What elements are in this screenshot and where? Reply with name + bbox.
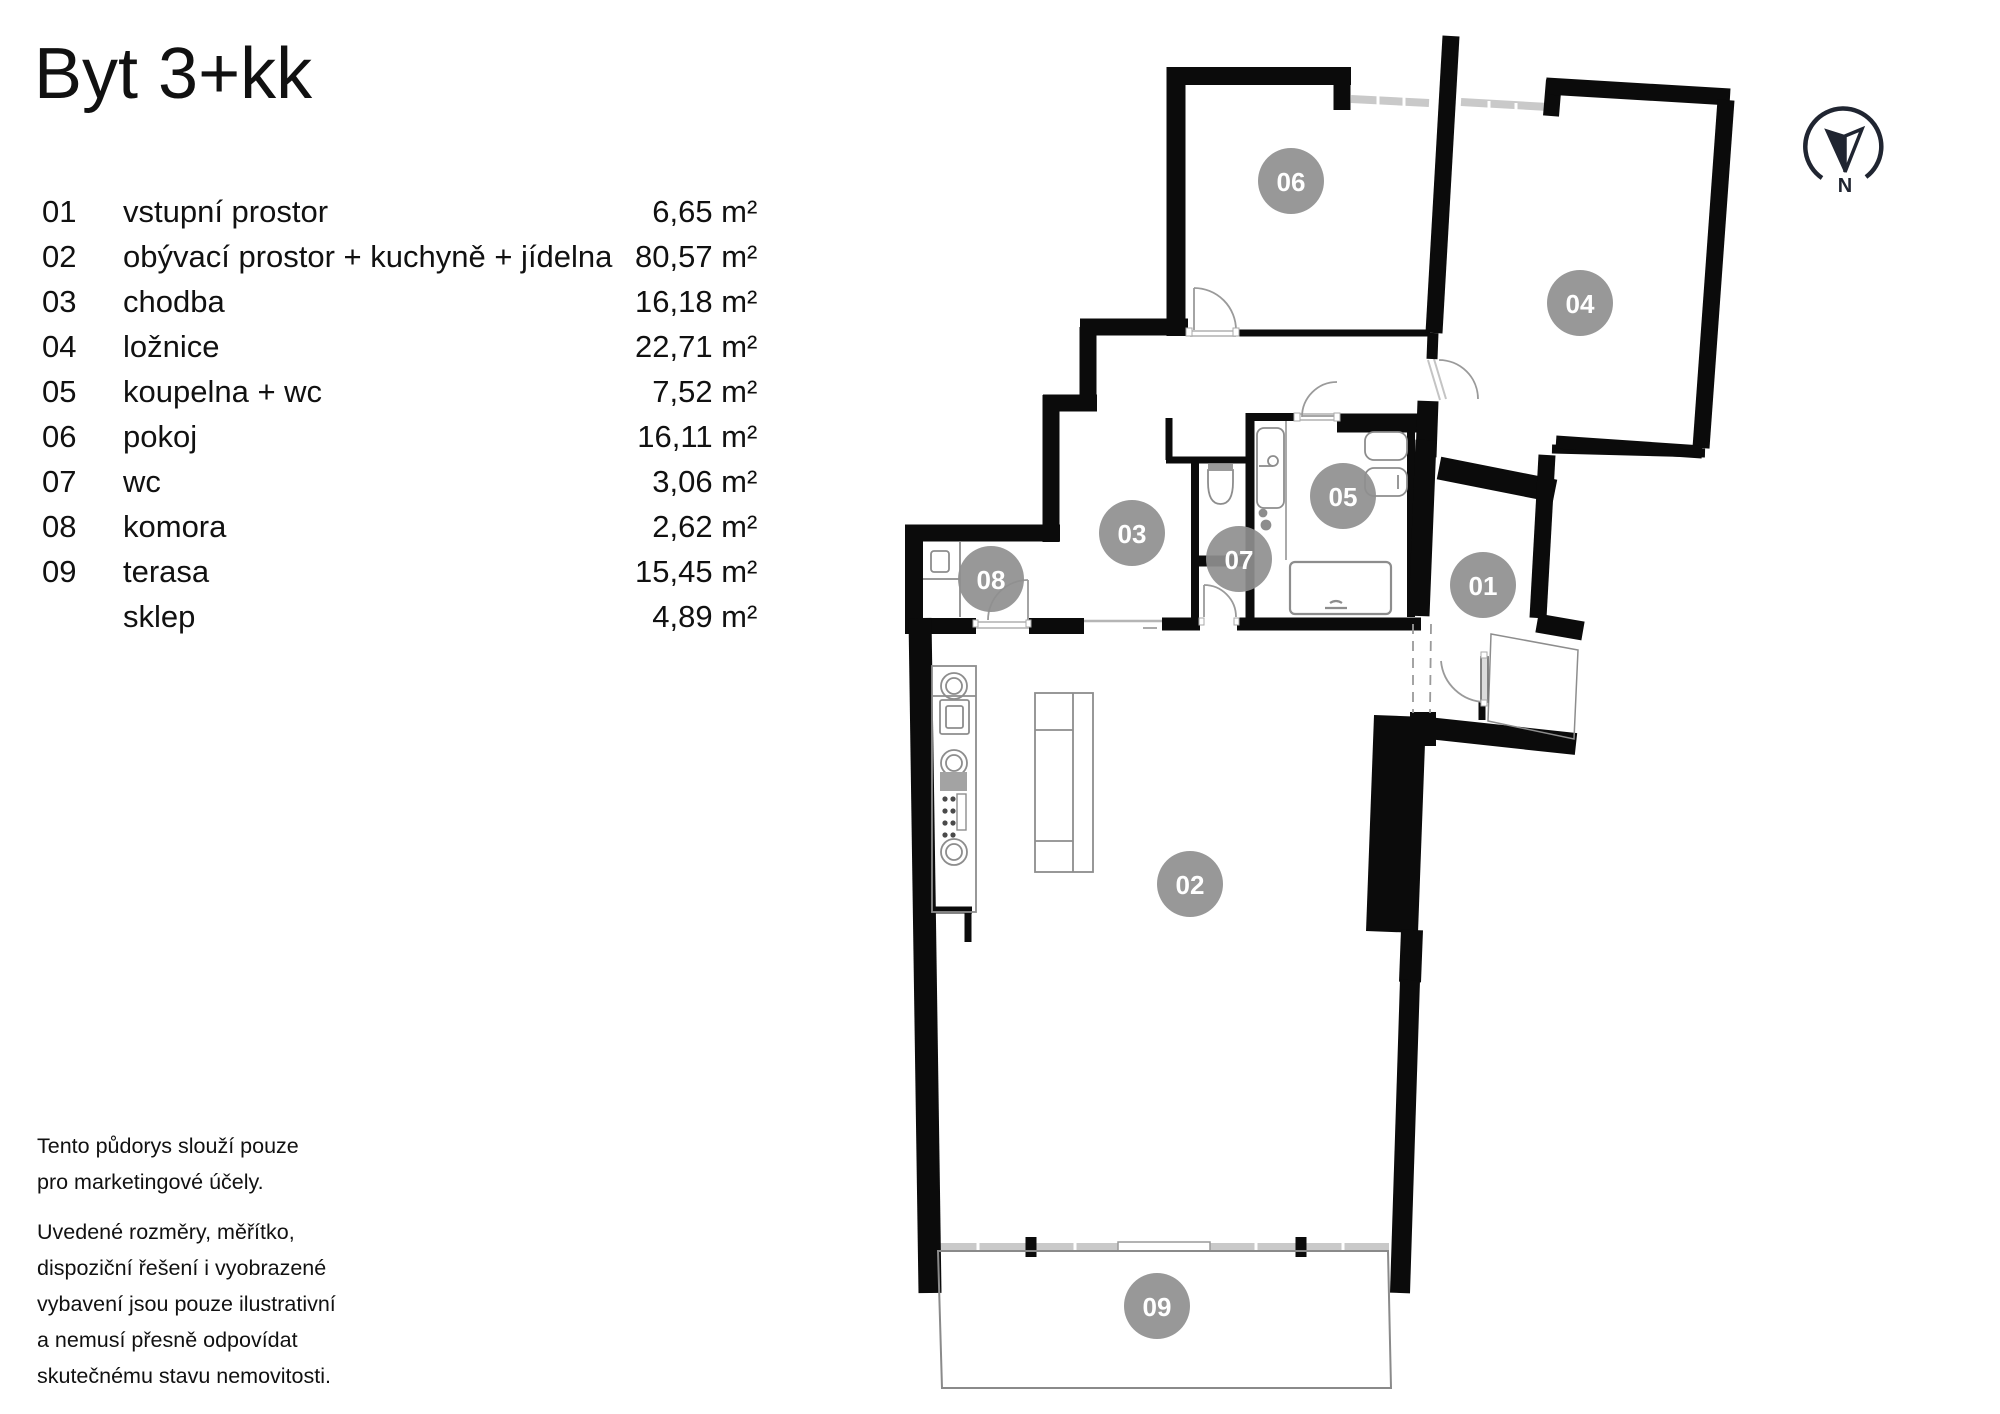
svg-text:09: 09 [1143, 1292, 1172, 1322]
svg-text:01: 01 [1469, 571, 1498, 601]
svg-text:03: 03 [1118, 519, 1147, 549]
svg-text:02: 02 [1176, 870, 1205, 900]
svg-text:07: 07 [1225, 545, 1254, 575]
svg-text:05: 05 [1329, 482, 1358, 512]
svg-text:08: 08 [977, 565, 1006, 595]
svg-text:04: 04 [1566, 289, 1595, 319]
svg-text:N: N [1838, 175, 1852, 197]
svg-text:06: 06 [1277, 167, 1306, 197]
